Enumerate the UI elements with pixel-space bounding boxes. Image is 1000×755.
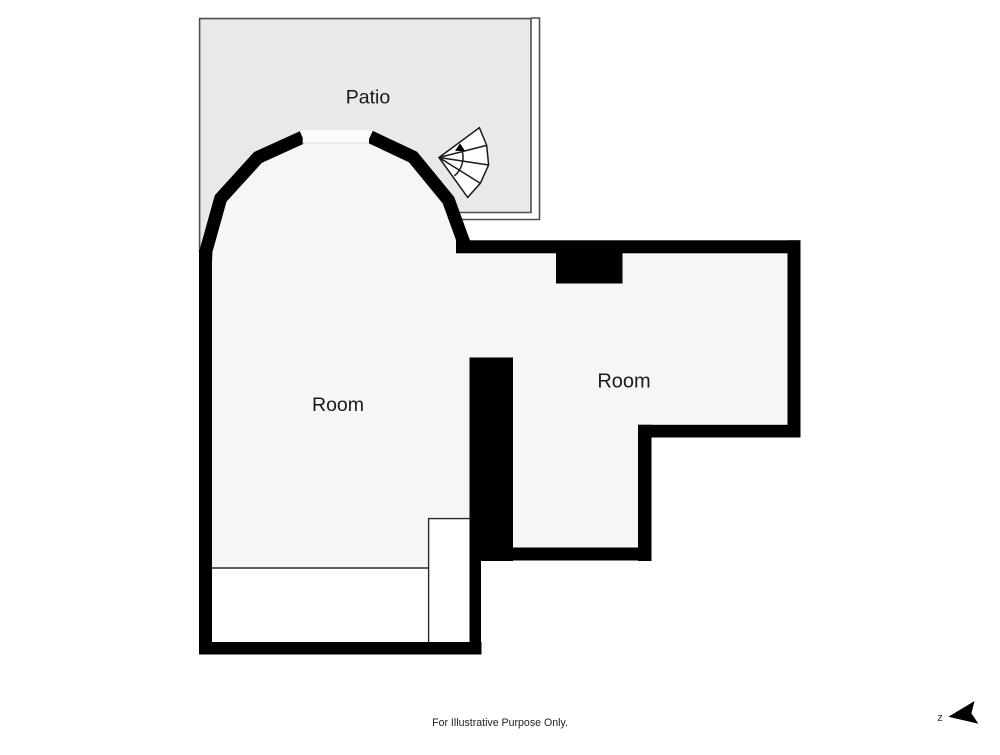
svg-text:z: z <box>937 712 943 724</box>
svg-text:Room: Room <box>312 394 364 416</box>
svg-text:Room: Room <box>597 371 650 393</box>
svg-text:For Illustrative Purpose Only.: For Illustrative Purpose Only. <box>432 717 568 729</box>
svg-text:Patio: Patio <box>346 87 391 109</box>
